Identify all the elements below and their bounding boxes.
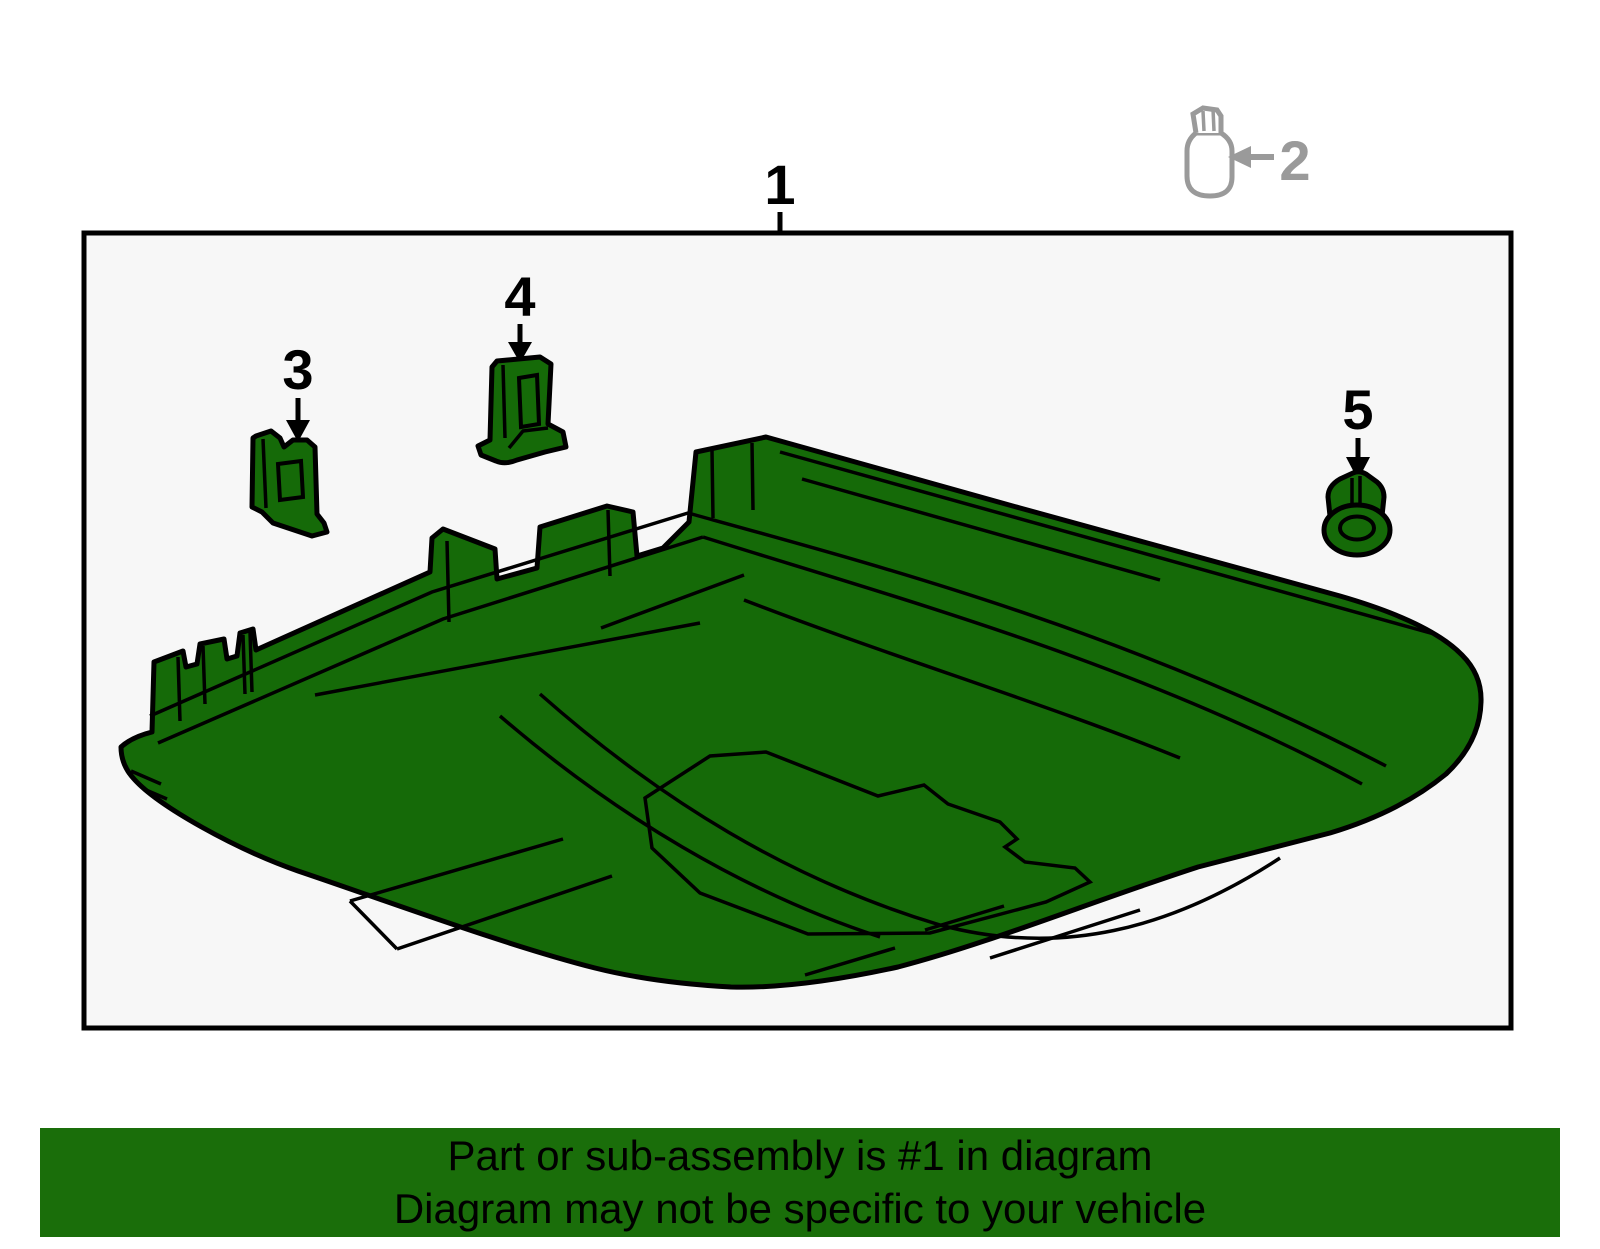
bulb-cap: [1193, 108, 1221, 133]
parts-diagram-page: 1 2: [0, 0, 1600, 1249]
callout-4-label[interactable]: 4: [504, 265, 535, 328]
bulb-icon[interactable]: [1187, 108, 1232, 196]
callout-2-label[interactable]: 2: [1279, 129, 1310, 192]
callout-3-label[interactable]: 3: [282, 338, 313, 401]
notice-banner: Part or sub-assembly is #1 in diagram Di…: [40, 1128, 1560, 1237]
banner-line-2: Diagram may not be specific to your vehi…: [394, 1185, 1206, 1233]
callout-5-label[interactable]: 5: [1342, 378, 1373, 441]
callout-1-label[interactable]: 1: [764, 153, 795, 216]
parts-diagram: 1 2: [0, 0, 1600, 1249]
bulb-body: [1187, 133, 1232, 196]
grommet-part-5[interactable]: [1324, 472, 1390, 555]
banner-line-1: Part or sub-assembly is #1 in diagram: [448, 1132, 1153, 1180]
arrow-left-icon: [1228, 146, 1274, 168]
